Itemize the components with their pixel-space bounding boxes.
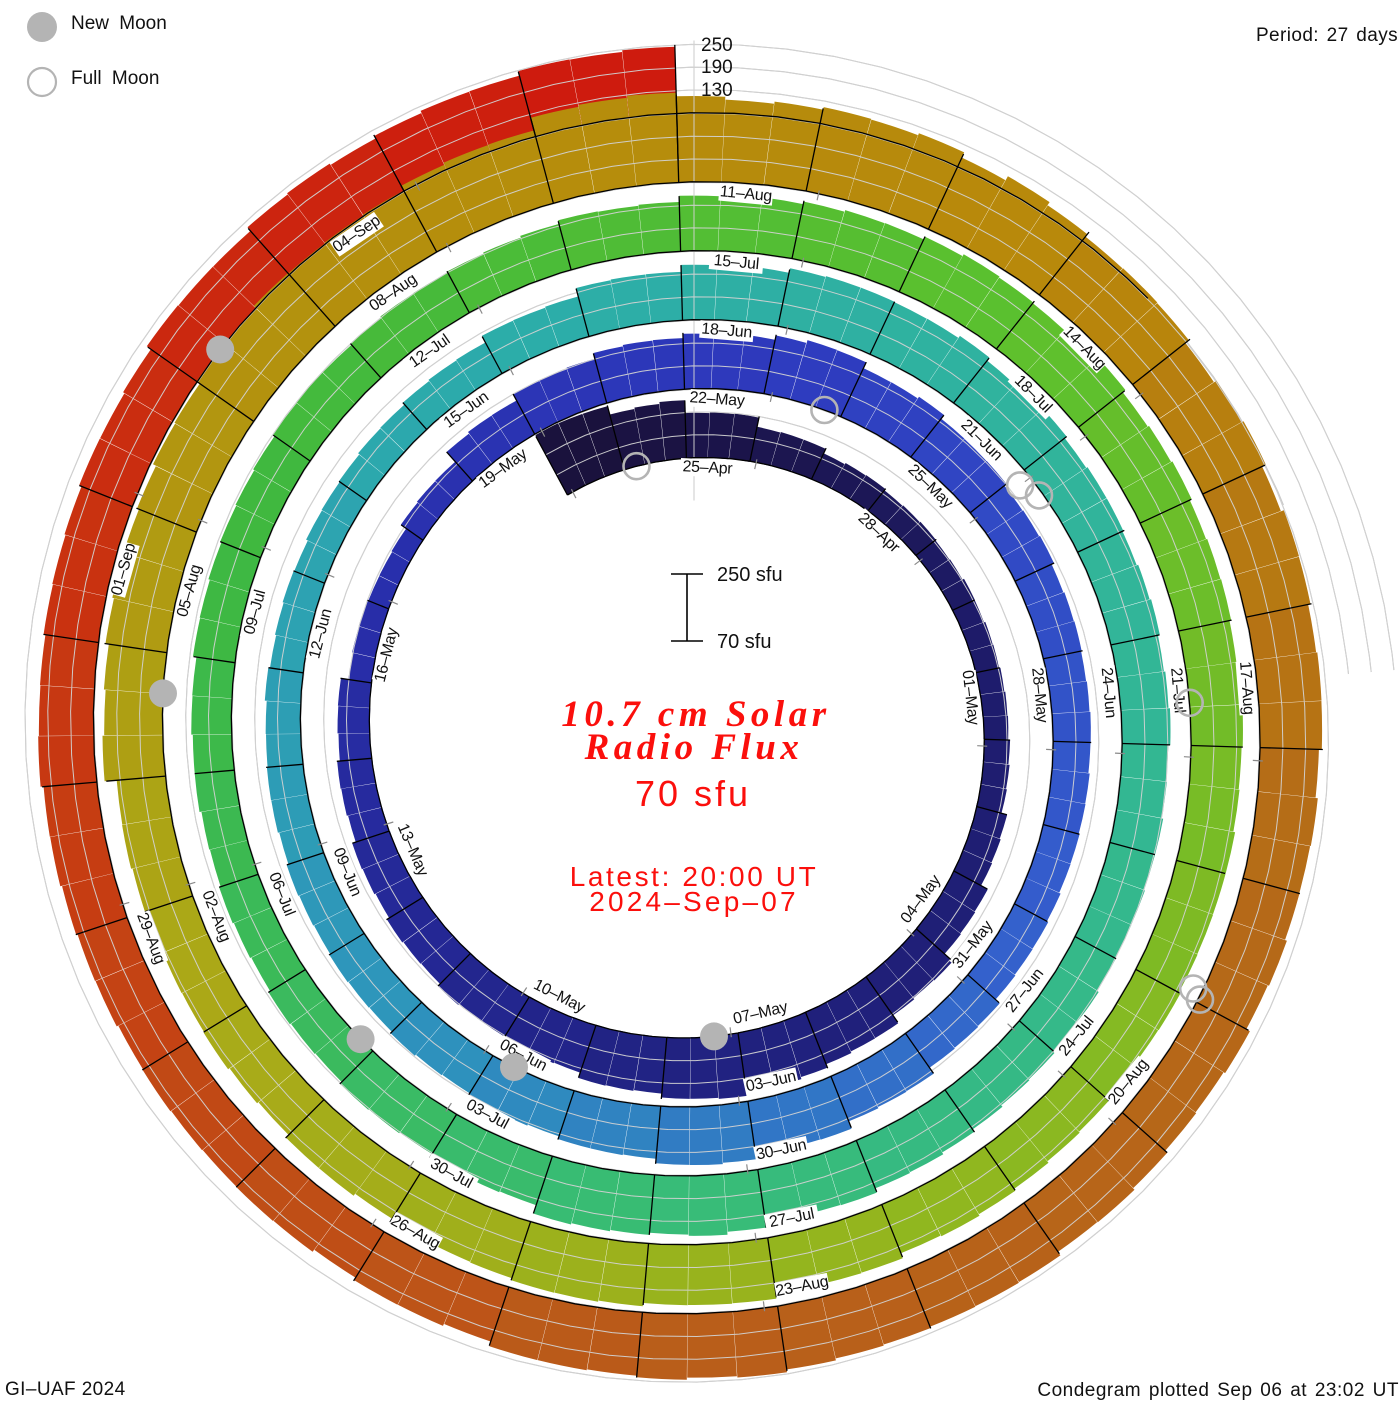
svg-text:190: 190 — [701, 57, 733, 78]
svg-text:New Moon: New Moon — [71, 13, 167, 34]
svg-text:70 sfu: 70 sfu — [717, 631, 771, 653]
svg-text:Period: 27 days: Period: 27 days — [1256, 25, 1398, 46]
svg-text:130: 130 — [701, 80, 733, 101]
svg-text:Full Moon: Full Moon — [71, 68, 159, 89]
svg-text:25–Apr: 25–Apr — [682, 458, 734, 478]
svg-text:2024–Sep–07: 2024–Sep–07 — [589, 886, 799, 917]
svg-text:Radio Flux: Radio Flux — [584, 727, 804, 768]
svg-text:GI–UAF 2024: GI–UAF 2024 — [5, 1379, 126, 1400]
svg-text:70 sfu: 70 sfu — [635, 773, 751, 814]
svg-text:250 sfu: 250 sfu — [717, 564, 783, 586]
svg-text:Condegram plotted Sep 06 at 23: Condegram plotted Sep 06 at 23:02 UT — [1037, 1380, 1399, 1400]
svg-text:250: 250 — [701, 35, 733, 56]
